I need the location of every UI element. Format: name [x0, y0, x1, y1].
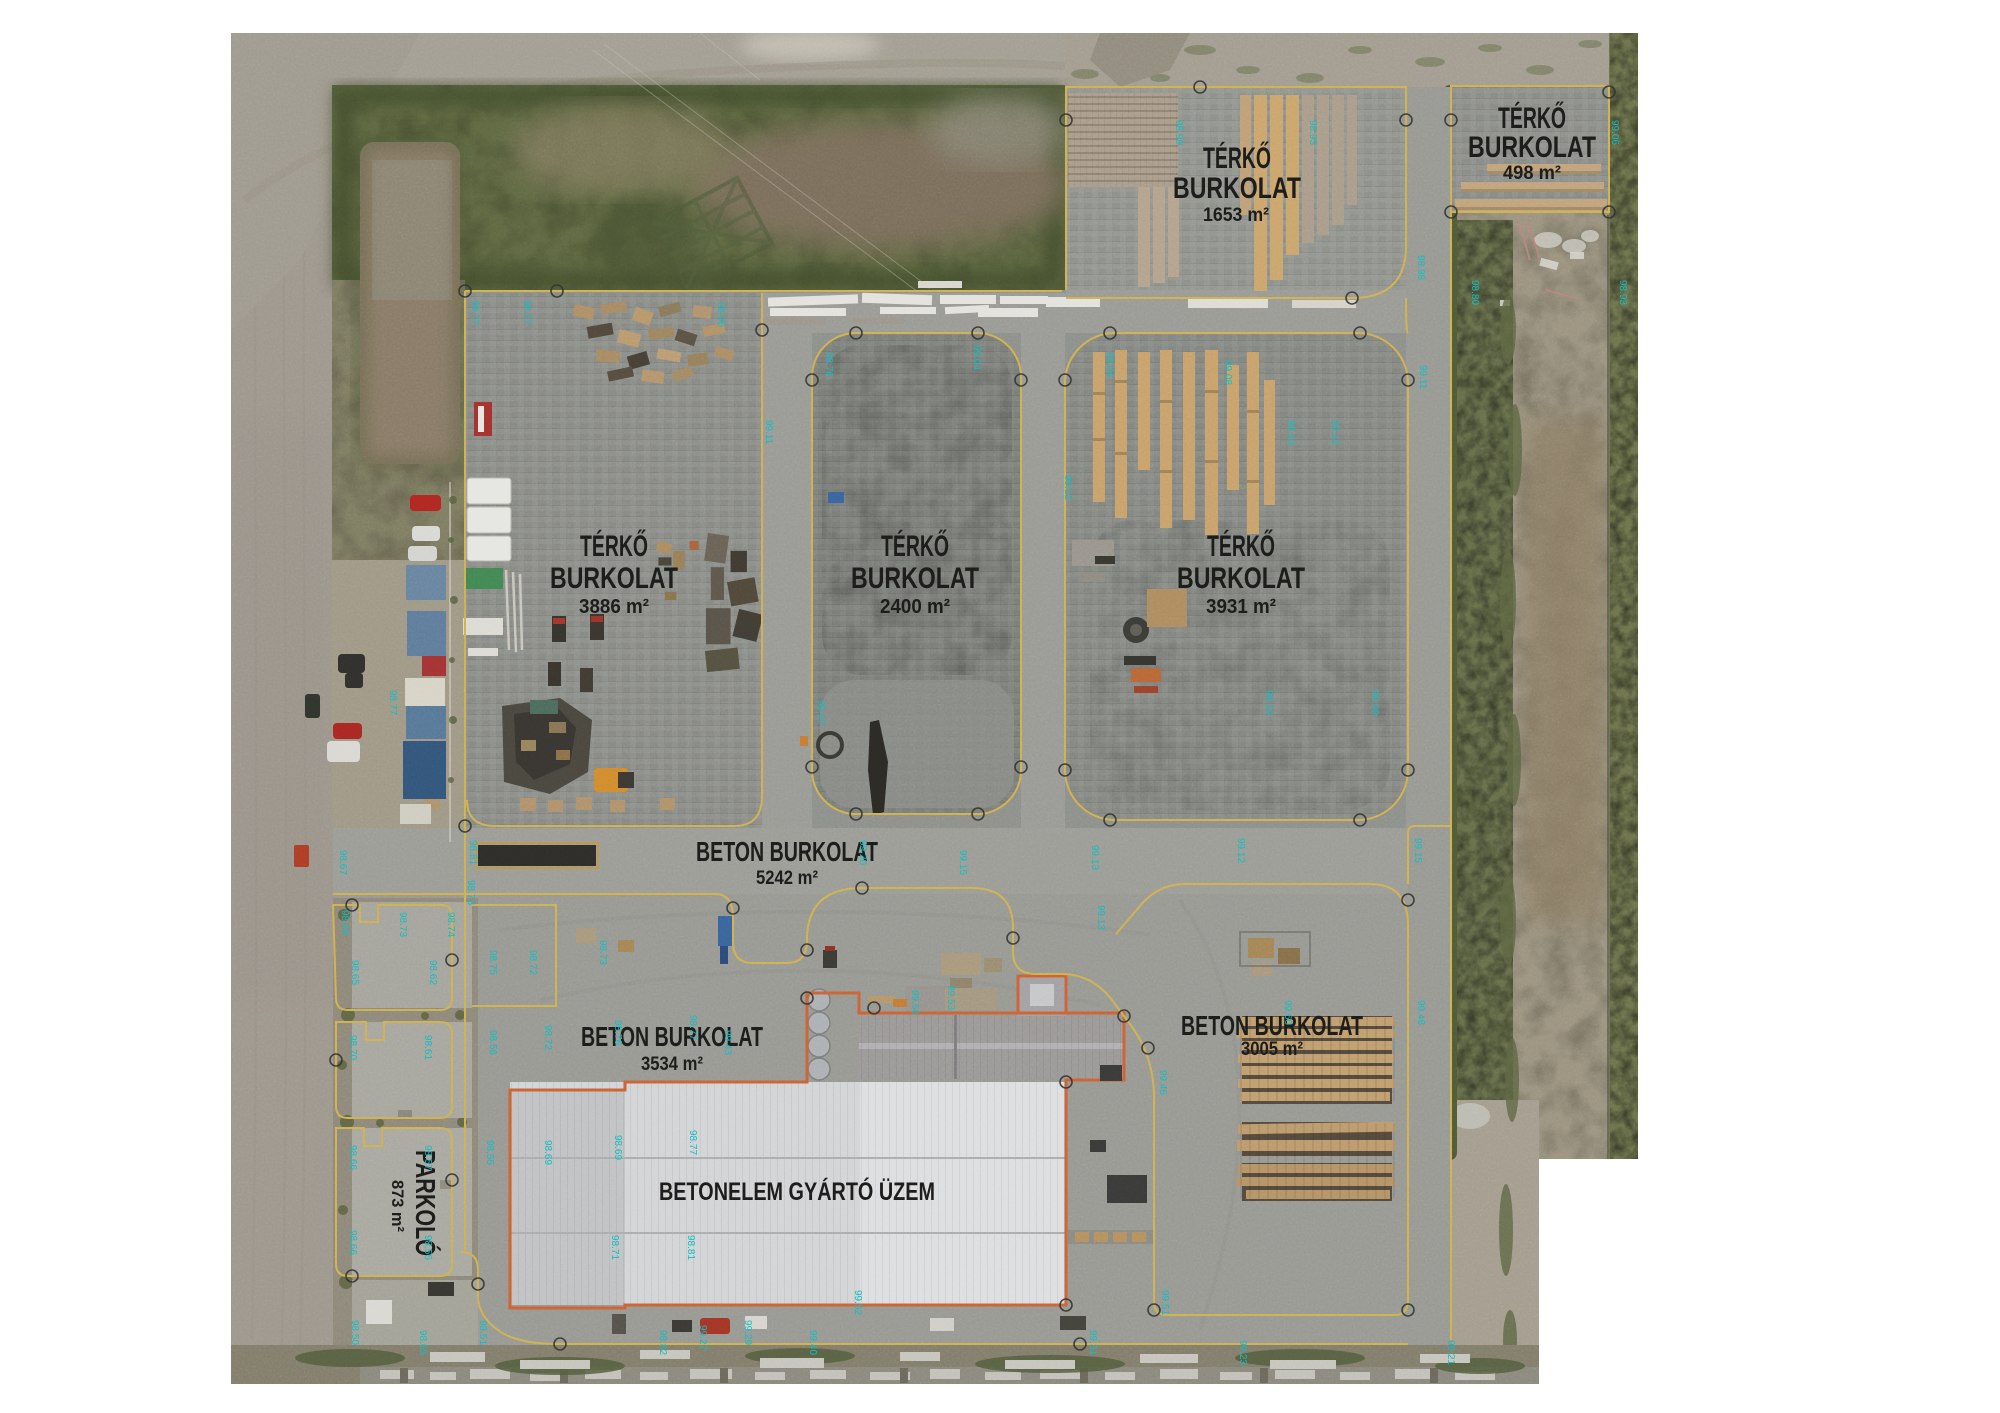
svg-text:99.11: 99.11	[1417, 365, 1428, 390]
svg-text:873 m²: 873 m²	[388, 1180, 407, 1232]
svg-text:99.13: 99.13	[1095, 905, 1106, 930]
svg-text:99.12: 99.12	[1235, 838, 1246, 863]
svg-text:99.15: 99.15	[957, 850, 968, 875]
svg-text:98.66: 98.66	[347, 1230, 358, 1255]
svg-text:2400 m²: 2400 m²	[880, 596, 950, 618]
svg-text:99.29: 99.29	[742, 1320, 753, 1345]
svg-text:498 m²: 498 m²	[1503, 163, 1561, 184]
svg-text:99.10: 99.10	[1263, 690, 1274, 715]
svg-text:98.77: 98.77	[521, 300, 532, 325]
svg-text:BURKOLAT: BURKOLAT	[1177, 562, 1305, 595]
svg-text:99.11: 99.11	[763, 420, 774, 445]
svg-text:TÉRKŐ: TÉRKŐ	[1203, 141, 1271, 175]
svg-text:5242 m²: 5242 m²	[756, 868, 818, 889]
svg-text:BETONELEM GYÁRTÓ ÜZEM: BETONELEM GYÁRTÓ ÜZEM	[659, 1176, 935, 1206]
svg-text:98.55: 98.55	[484, 1140, 495, 1165]
svg-text:99.12: 99.12	[1329, 420, 1340, 445]
svg-text:98.51: 98.51	[477, 1320, 488, 1345]
svg-text:98.69: 98.69	[339, 910, 350, 935]
svg-text:99.06: 99.06	[1609, 120, 1620, 145]
svg-text:98.61: 98.61	[422, 1035, 433, 1060]
svg-text:98.76: 98.76	[612, 1020, 623, 1045]
svg-text:98.81: 98.81	[685, 1235, 696, 1260]
svg-text:99.31: 99.31	[1087, 1330, 1098, 1355]
svg-text:98.93: 98.93	[1617, 280, 1628, 305]
svg-text:BURKOLAT: BURKOLAT	[851, 562, 979, 595]
svg-text:98.74: 98.74	[445, 912, 456, 937]
svg-text:BETON BURKOLAT: BETON BURKOLAT	[696, 836, 878, 867]
svg-text:99.20: 99.20	[857, 840, 868, 865]
svg-text:98.73: 98.73	[397, 912, 408, 937]
svg-text:3886 m²: 3886 m²	[579, 596, 649, 618]
svg-text:98.93: 98.93	[1307, 120, 1318, 145]
svg-text:99.46: 99.46	[1157, 1070, 1168, 1095]
svg-text:1653 m²: 1653 m²	[1203, 205, 1269, 226]
svg-text:99.52: 99.52	[852, 1290, 863, 1315]
svg-text:99.56: 99.56	[909, 990, 920, 1015]
svg-text:TÉRKŐ: TÉRKŐ	[1498, 101, 1566, 135]
svg-text:98.67: 98.67	[337, 850, 348, 875]
svg-text:3005 m²: 3005 m²	[1241, 1039, 1303, 1060]
svg-text:99.15: 99.15	[1412, 838, 1423, 863]
svg-text:BETON BURKOLAT: BETON BURKOLAT	[581, 1021, 763, 1052]
svg-text:BURKOLAT: BURKOLAT	[550, 562, 678, 595]
svg-text:98.65: 98.65	[417, 1330, 428, 1355]
svg-text:98.77: 98.77	[687, 1130, 698, 1155]
svg-text:99.21: 99.21	[1445, 1340, 1456, 1365]
svg-text:98.77: 98.77	[469, 300, 480, 325]
svg-text:BURKOLAT: BURKOLAT	[1173, 172, 1301, 205]
svg-text:99.60: 99.60	[1282, 1000, 1293, 1025]
svg-text:3931 m²: 3931 m²	[1206, 596, 1276, 618]
svg-text:TÉRKŐ: TÉRKŐ	[881, 529, 949, 563]
svg-text:99.12: 99.12	[1062, 475, 1073, 500]
svg-text:98.75: 98.75	[487, 950, 498, 975]
svg-text:99.04: 99.04	[1104, 352, 1115, 377]
svg-text:99.13: 99.13	[1285, 420, 1296, 445]
svg-text:TÉRKŐ: TÉRKŐ	[580, 529, 648, 563]
svg-text:98.62: 98.62	[427, 960, 438, 985]
svg-text:98.82: 98.82	[657, 1330, 668, 1355]
svg-text:98.81: 98.81	[467, 840, 478, 865]
svg-text:99.51: 99.51	[1159, 1290, 1170, 1315]
svg-text:99.43: 99.43	[722, 1030, 733, 1055]
svg-text:98.72: 98.72	[527, 950, 538, 975]
svg-text:98.69: 98.69	[542, 1140, 553, 1165]
svg-text:98.70: 98.70	[347, 1035, 358, 1060]
svg-text:98.73: 98.73	[465, 880, 476, 905]
svg-text:99.09: 99.09	[1369, 690, 1380, 715]
svg-text:98.99: 98.99	[1173, 120, 1184, 145]
svg-text:98.73: 98.73	[597, 940, 608, 965]
svg-text:98.57: 98.57	[422, 1145, 433, 1170]
svg-text:98.69: 98.69	[612, 1135, 623, 1160]
svg-text:99.13: 99.13	[1089, 845, 1100, 870]
svg-text:3534 m²: 3534 m²	[641, 1054, 703, 1075]
svg-text:98.72: 98.72	[542, 1025, 553, 1050]
svg-text:98.96: 98.96	[715, 302, 726, 327]
svg-text:99.53: 99.53	[945, 985, 956, 1010]
svg-text:98.77: 98.77	[387, 690, 398, 715]
svg-text:98.76: 98.76	[823, 352, 834, 377]
svg-text:98.77: 98.77	[687, 1015, 698, 1040]
svg-text:98.66: 98.66	[347, 1145, 358, 1170]
svg-text:99.40: 99.40	[807, 1330, 818, 1355]
svg-text:99.04: 99.04	[971, 345, 982, 370]
svg-text:98.58: 98.58	[487, 1030, 498, 1055]
svg-text:98.65: 98.65	[349, 960, 360, 985]
svg-text:99.27: 99.27	[815, 700, 826, 725]
svg-text:TÉRKŐ: TÉRKŐ	[1207, 529, 1275, 563]
svg-text:99.23: 99.23	[1237, 1340, 1248, 1365]
svg-text:98.98: 98.98	[1415, 255, 1426, 280]
svg-text:BETON BURKOLAT: BETON BURKOLAT	[1181, 1010, 1363, 1041]
svg-text:98.80: 98.80	[1469, 280, 1480, 305]
svg-text:BURKOLAT: BURKOLAT	[1468, 131, 1596, 164]
svg-text:99.27: 99.27	[697, 1325, 708, 1350]
svg-text:99.48: 99.48	[1415, 1000, 1426, 1025]
svg-text:98.71: 98.71	[609, 1235, 620, 1260]
svg-text:98.50: 98.50	[349, 1320, 360, 1345]
svg-text:99.08: 99.08	[1222, 360, 1233, 385]
svg-text:98.55: 98.55	[422, 1235, 433, 1260]
